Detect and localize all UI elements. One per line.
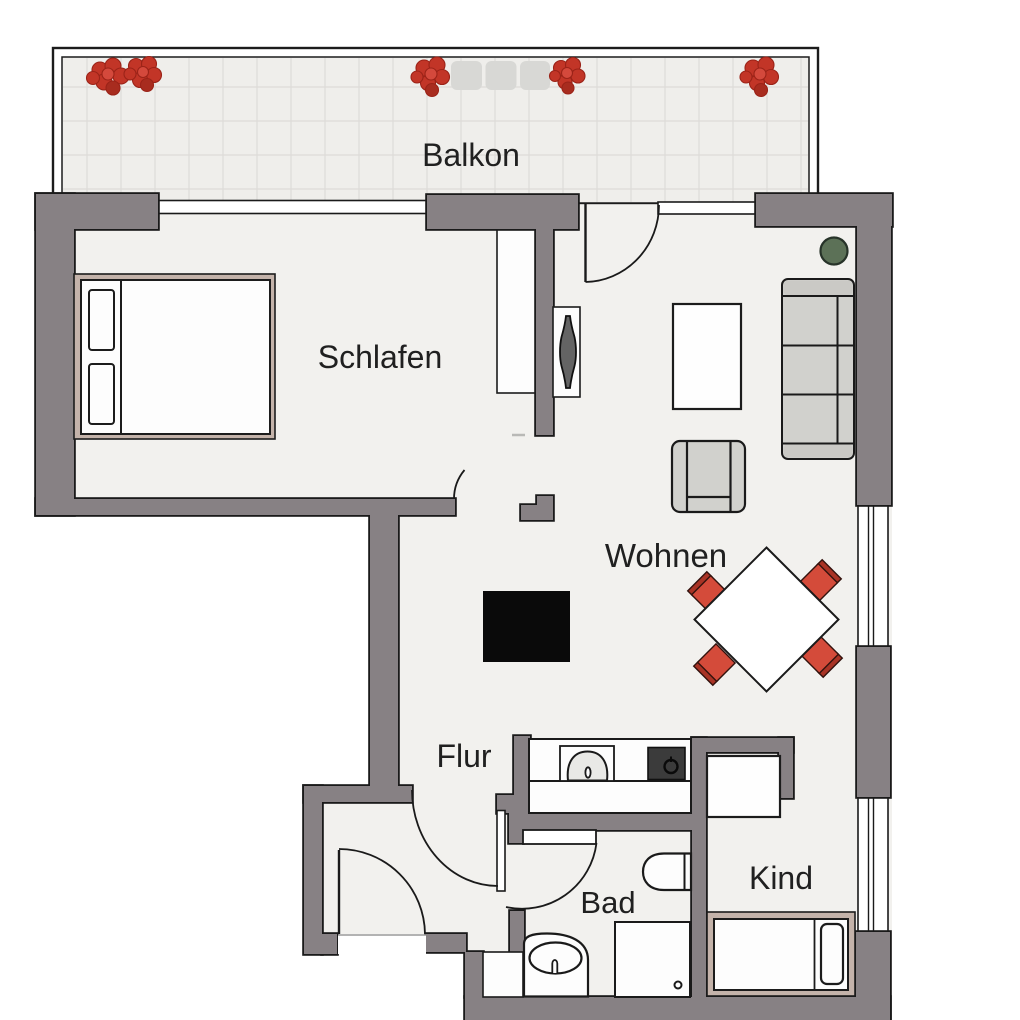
svg-text:Bad: Bad xyxy=(580,885,635,920)
svg-text:Wohnen: Wohnen xyxy=(605,537,727,574)
svg-text:Schlafen: Schlafen xyxy=(318,339,443,375)
svg-text:Kind: Kind xyxy=(749,860,813,896)
svg-text:Balkon: Balkon xyxy=(422,137,520,173)
svg-text:Flur: Flur xyxy=(436,738,491,774)
